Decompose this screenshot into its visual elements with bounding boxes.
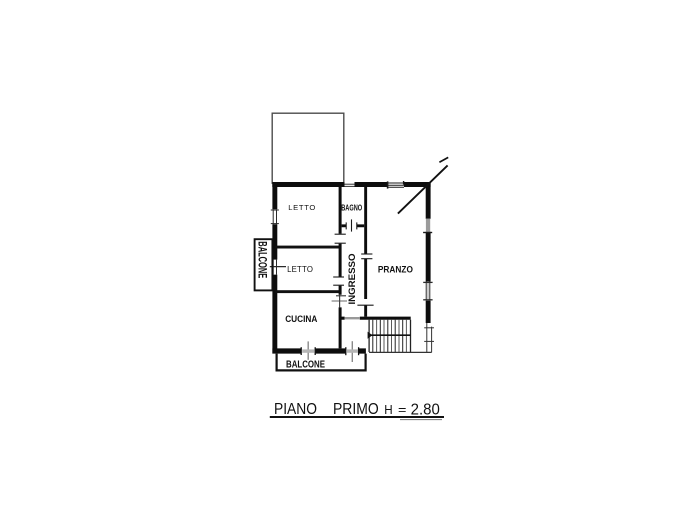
svg-text:INGRESSO: INGRESSO bbox=[348, 253, 359, 305]
svg-text:CUCINA: CUCINA bbox=[285, 314, 318, 324]
svg-text:2.80: 2.80 bbox=[411, 401, 440, 418]
svg-text:PRANZO: PRANZO bbox=[378, 265, 413, 276]
svg-text:LETTO: LETTO bbox=[288, 203, 315, 212]
svg-text:BALCONE: BALCONE bbox=[286, 359, 325, 370]
svg-text:PIANO: PIANO bbox=[274, 401, 317, 418]
svg-text:BALCONE: BALCONE bbox=[256, 241, 270, 278]
svg-text:LETTO: LETTO bbox=[287, 265, 313, 274]
svg-text:PRIMO: PRIMO bbox=[333, 401, 379, 418]
svg-text:BAGNO: BAGNO bbox=[341, 203, 362, 212]
svg-text:=: = bbox=[398, 402, 406, 417]
svg-text:H: H bbox=[384, 402, 392, 417]
